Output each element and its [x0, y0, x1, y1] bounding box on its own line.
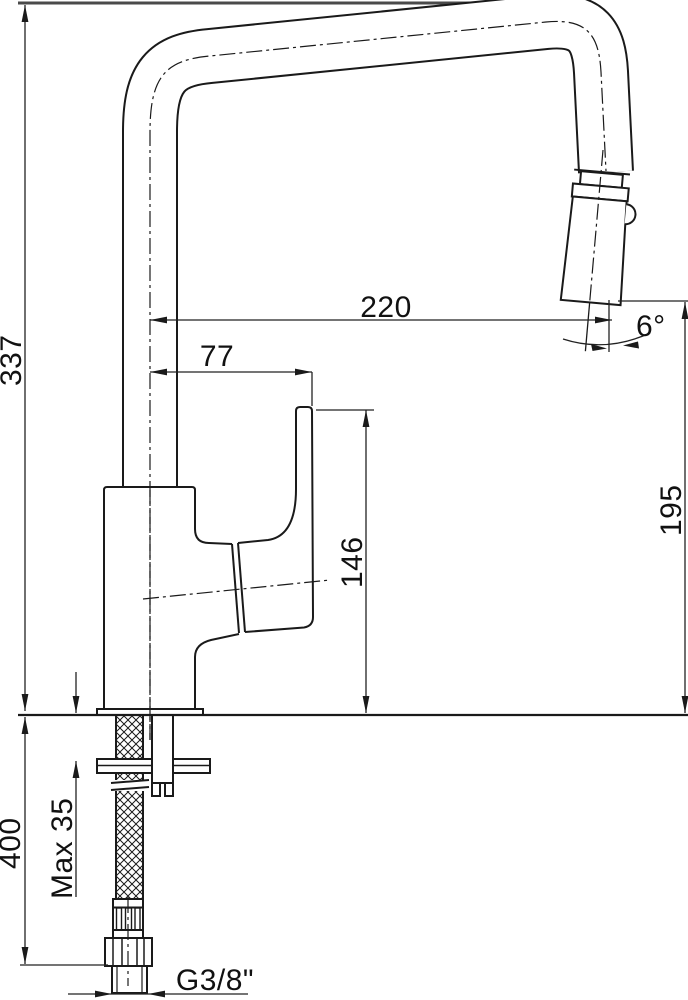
handle-joint-seam — [232, 544, 239, 633]
mounting-stud — [152, 715, 173, 783]
spray-button — [625, 204, 637, 225]
dim-label-77: 77 — [200, 340, 234, 373]
body-outline-lower — [195, 634, 239, 709]
stud-foot — [165, 783, 173, 796]
body-outline-upper — [104, 487, 232, 709]
spray-head-body — [561, 196, 630, 305]
faucet-technical-drawing: 337 220 77 6° 195 146 400 Max 35 G3/8" — [0, 0, 688, 1000]
dim-label-6deg: 6° — [636, 310, 666, 343]
dim-label-400: 400 — [0, 817, 27, 869]
stud-foot — [152, 783, 160, 796]
spray-head — [557, 147, 641, 354]
dim-label-g38: G3/8" — [176, 964, 254, 997]
supply-hose — [116, 715, 143, 898]
drawing-canvas: 337 220 77 6° 195 146 400 Max 35 G3/8" — [0, 0, 688, 1000]
handle — [238, 407, 313, 632]
spout-tube — [150, 21, 606, 740]
dim-label-337: 337 — [0, 334, 28, 386]
dim-label-195: 195 — [655, 484, 688, 536]
spout-centerline — [150, 21, 606, 740]
dim-label-max35: Max 35 — [46, 798, 79, 899]
dim-label-146: 146 — [336, 536, 369, 588]
dim-label-220: 220 — [360, 291, 412, 324]
under-counter-assembly — [97, 715, 210, 993]
